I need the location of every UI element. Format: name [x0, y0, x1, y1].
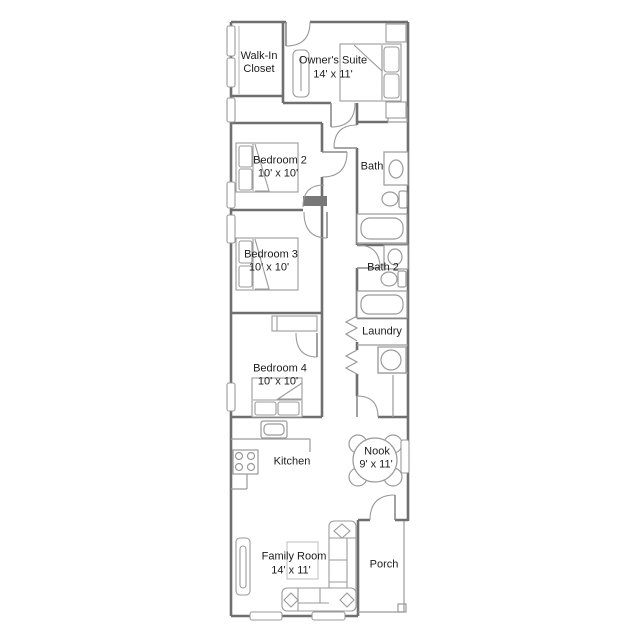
pillow-icon — [278, 402, 299, 415]
door-swing-icon — [370, 495, 395, 520]
porch-post-icon — [398, 604, 406, 612]
door-swing-icon — [334, 125, 357, 148]
room-label-porch: Porch — [370, 559, 399, 572]
room-dims-bedroom-2: 10' x 10' — [258, 168, 298, 181]
room-label-family-room: Family Room — [262, 551, 327, 564]
toilet-icon — [399, 191, 407, 208]
room-label-laundry: Laundry — [362, 326, 402, 339]
bath2-fixtures — [357, 245, 408, 318]
room-label-bedroom-4: Bedroom 4 — [253, 363, 307, 376]
floor-plan-drawing — [0, 0, 639, 639]
window-icon — [227, 215, 235, 243]
pillow-icon — [384, 47, 399, 72]
window-icon — [227, 182, 235, 208]
washer-icon — [378, 347, 406, 373]
room-label-nook: Nook — [364, 446, 390, 459]
window-icon — [312, 612, 345, 620]
nightstand-icon — [386, 24, 406, 42]
pillow-icon — [239, 146, 252, 167]
door-swing-icon — [286, 22, 310, 46]
pillow-icon — [384, 74, 399, 98]
door-swing-icon — [322, 152, 347, 177]
room-label-kitchen: Kitchen — [274, 456, 311, 469]
pillow-icon — [255, 402, 276, 415]
room-dims-family-room: 14' x 11' — [271, 565, 310, 578]
nightstand-icon — [386, 102, 406, 118]
closet — [272, 316, 317, 331]
bath-fixtures — [357, 107, 408, 243]
window-icon — [227, 383, 235, 411]
door-swing-icon — [331, 103, 355, 127]
room-label-walk-in-closet: Walk-In Closet — [230, 50, 288, 76]
floor-plan-page: Walk-In Closet Owner's Suite 14' x 11' B… — [0, 0, 639, 639]
room-label-bath-2: Bath 2 — [367, 262, 399, 275]
room-dims-owners-suite: 14' x 11' — [313, 69, 352, 82]
window-icon — [401, 440, 409, 473]
room-dims-nook: 9' x 11' — [359, 459, 392, 472]
walls — [231, 22, 408, 616]
pillow-icon — [239, 169, 252, 190]
room-dims-bedroom-4: 10' x 10' — [258, 376, 298, 389]
window-icon — [250, 612, 282, 620]
bifold-door-icon — [346, 316, 357, 341]
door-swing-icon — [357, 396, 378, 417]
door-swing-icon — [304, 212, 327, 238]
toilet-icon — [398, 271, 406, 287]
windows — [227, 26, 409, 620]
window-icon — [227, 98, 235, 122]
room-label-bath: Bath — [361, 161, 384, 174]
room-label-owners-suite: Owner's Suite — [299, 55, 367, 68]
room-label-bedroom-3: Bedroom 3 — [244, 249, 298, 262]
room-dims-bedroom-3: 10' x 10' — [249, 262, 289, 275]
bifold-door-icon — [346, 350, 357, 374]
room-label-bedroom-2: Bedroom 2 — [253, 155, 307, 168]
wall-stub — [303, 196, 327, 206]
door-swing-icon — [296, 333, 317, 357]
